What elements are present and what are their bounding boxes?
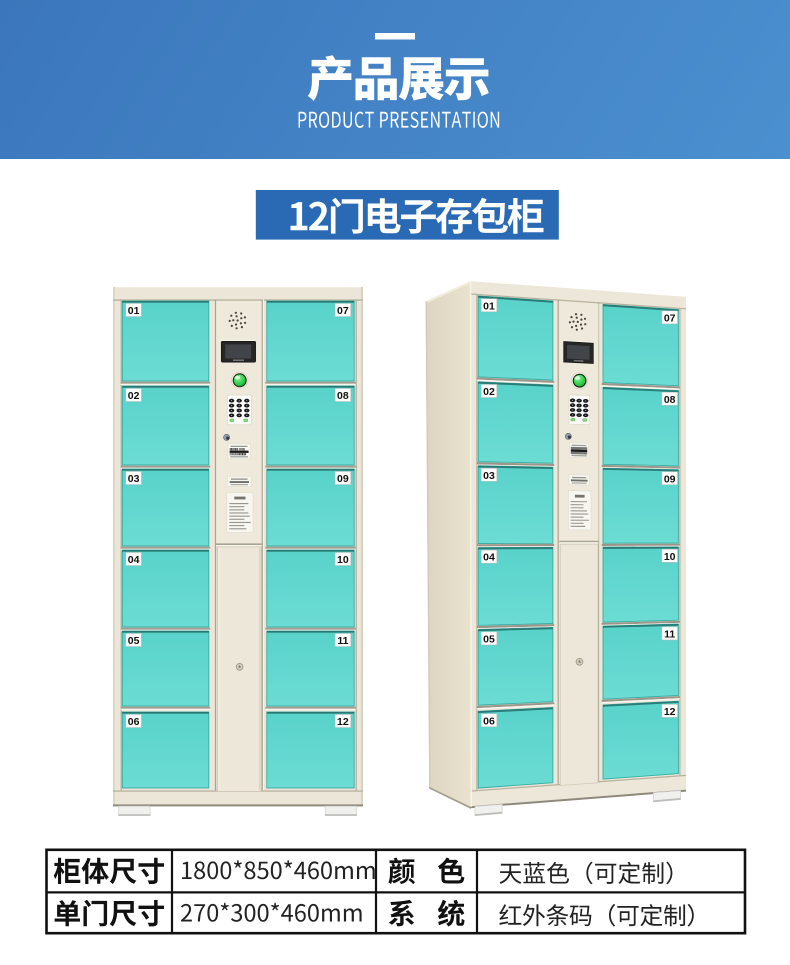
svg-text:02: 02 [483,386,495,398]
svg-text:10: 10 [664,551,676,563]
svg-text:03: 03 [128,473,140,485]
svg-text:06: 06 [483,715,495,727]
svg-text:12: 12 [337,716,349,728]
svg-text:04: 04 [128,554,140,566]
svg-text:10: 10 [337,554,349,566]
svg-text:11: 11 [664,629,675,641]
svg-text:03: 03 [483,470,495,482]
svg-text:09: 09 [337,473,349,485]
svg-text:09: 09 [664,473,676,485]
svg-text:06: 06 [128,716,140,728]
svg-text:08: 08 [337,390,349,402]
svg-text:08: 08 [664,394,676,406]
svg-text:05: 05 [128,635,140,647]
svg-text:07: 07 [664,313,676,325]
svg-text:05: 05 [483,634,495,646]
svg-text:11: 11 [337,635,348,647]
svg-text:01: 01 [128,305,140,317]
svg-text:01: 01 [483,300,495,312]
svg-text:07: 07 [337,305,349,317]
svg-text:02: 02 [128,390,140,402]
svg-text:04: 04 [483,552,495,564]
svg-text:12: 12 [664,706,676,718]
